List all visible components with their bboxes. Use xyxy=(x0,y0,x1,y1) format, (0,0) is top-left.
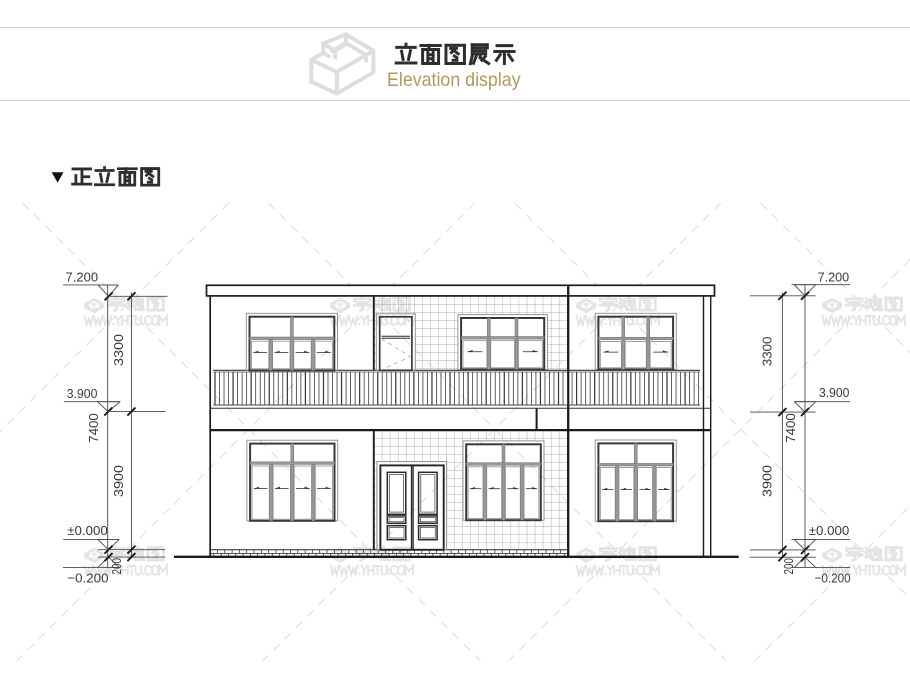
svg-text:−0.200: −0.200 xyxy=(815,571,851,586)
svg-text:3300: 3300 xyxy=(760,337,775,367)
svg-text:7.200: 7.200 xyxy=(66,270,99,285)
svg-text:±0.000: ±0.000 xyxy=(809,523,850,538)
svg-text:−0.200: −0.200 xyxy=(67,571,108,586)
svg-text:3900: 3900 xyxy=(760,465,775,497)
svg-text:7400: 7400 xyxy=(783,413,798,443)
svg-text:200: 200 xyxy=(109,558,124,575)
svg-text:3300: 3300 xyxy=(111,334,126,366)
svg-text:7400: 7400 xyxy=(86,413,101,443)
svg-text:Elevation display: Elevation display xyxy=(387,69,521,91)
svg-text:3900: 3900 xyxy=(111,465,126,497)
svg-text:200: 200 xyxy=(781,558,796,575)
svg-text:3.900: 3.900 xyxy=(67,386,98,401)
svg-text:7.200: 7.200 xyxy=(818,270,850,285)
svg-text:±0.000: ±0.000 xyxy=(67,523,107,538)
svg-text:3.900: 3.900 xyxy=(819,385,849,400)
